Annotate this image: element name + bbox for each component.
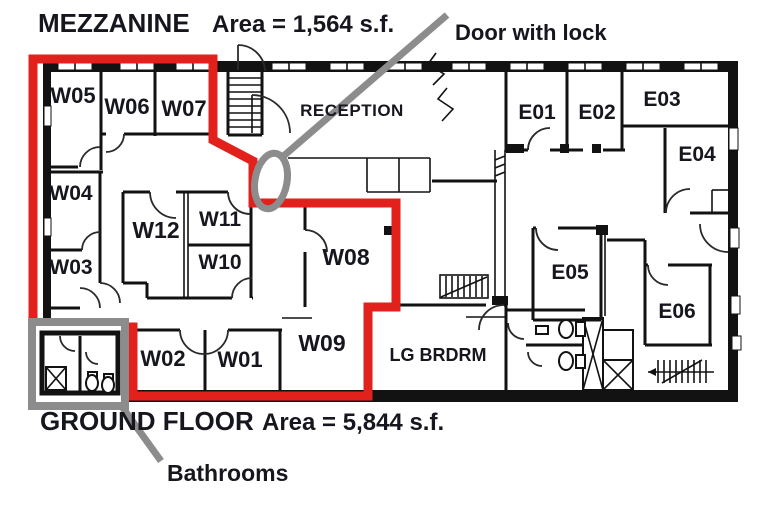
room-label-e01: E01 <box>518 101 556 124</box>
room-label-w07: W07 <box>161 96 206 121</box>
room-label-e03: E03 <box>643 88 680 111</box>
room-label-w08: W08 <box>322 244 370 270</box>
ground-floor-title: GROUND FLOOR <box>40 406 254 436</box>
mezzanine-area: Area = 1,564 s.f. <box>212 11 394 38</box>
room-label-e04: E04 <box>678 143 716 166</box>
room-label-reception: RECEPTION <box>300 101 404 120</box>
room-label-w11: W11 <box>199 208 241 231</box>
bathrooms-label: Bathrooms <box>167 460 288 486</box>
door-with-lock-label: Door with lock <box>455 20 607 45</box>
room-label-w06: W06 <box>104 94 149 119</box>
room-label-e05: E05 <box>551 261 589 284</box>
room-label-w03: W03 <box>49 256 92 279</box>
doors <box>80 45 728 366</box>
room-label-w10: W10 <box>198 251 241 274</box>
room-label-w01: W01 <box>217 347 262 372</box>
room-label-e06: E06 <box>658 300 695 323</box>
room-label-w05: W05 <box>50 83 95 108</box>
west-bathrooms <box>32 322 125 406</box>
floor-plan-drawing: MEZZANINE Area = 1,564 s.f. Door with lo… <box>0 0 760 505</box>
room-label-w12: W12 <box>132 217 179 243</box>
ground-floor-area: Area = 5,844 s.f. <box>262 409 444 436</box>
wall-break-icon <box>438 88 453 121</box>
mezzanine-title: MEZZANINE <box>38 8 190 38</box>
room-label-w04: W04 <box>49 182 93 205</box>
room-label-e02: E02 <box>578 101 615 124</box>
room-label-lg-brdrm: LG BRDRM <box>390 345 487 365</box>
room-label-w09: W09 <box>298 330 345 356</box>
floor-plan-page: MEZZANINE Area = 1,564 s.f. Door with lo… <box>0 0 760 505</box>
room-label-w02: W02 <box>140 346 185 371</box>
